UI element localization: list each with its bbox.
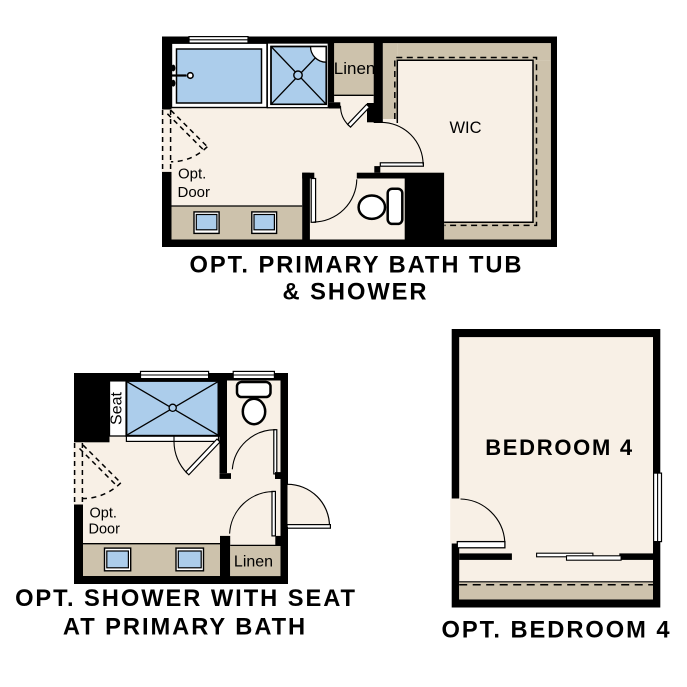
svg-text:Opt.: Opt.	[90, 506, 117, 522]
svg-text:Seat: Seat	[109, 391, 126, 424]
svg-text:Opt.: Opt.	[178, 166, 206, 183]
svg-text:OPT. SHOWER WITH SEAT: OPT. SHOWER WITH SEAT	[15, 586, 357, 612]
svg-text:Door: Door	[178, 184, 211, 201]
svg-text:BEDROOM 4: BEDROOM 4	[485, 435, 634, 460]
svg-text:Linen: Linen	[234, 554, 273, 571]
svg-text:Door: Door	[89, 522, 121, 538]
svg-text:WIC: WIC	[449, 119, 481, 137]
svg-text:Linen: Linen	[334, 59, 376, 78]
svg-text:& SHOWER: & SHOWER	[283, 280, 429, 306]
svg-text:OPT. BEDROOM 4: OPT. BEDROOM 4	[442, 618, 672, 644]
svg-text:AT PRIMARY BATH: AT PRIMARY BATH	[63, 615, 307, 641]
svg-text:OPT. PRIMARY BATH TUB: OPT. PRIMARY BATH TUB	[190, 253, 524, 279]
